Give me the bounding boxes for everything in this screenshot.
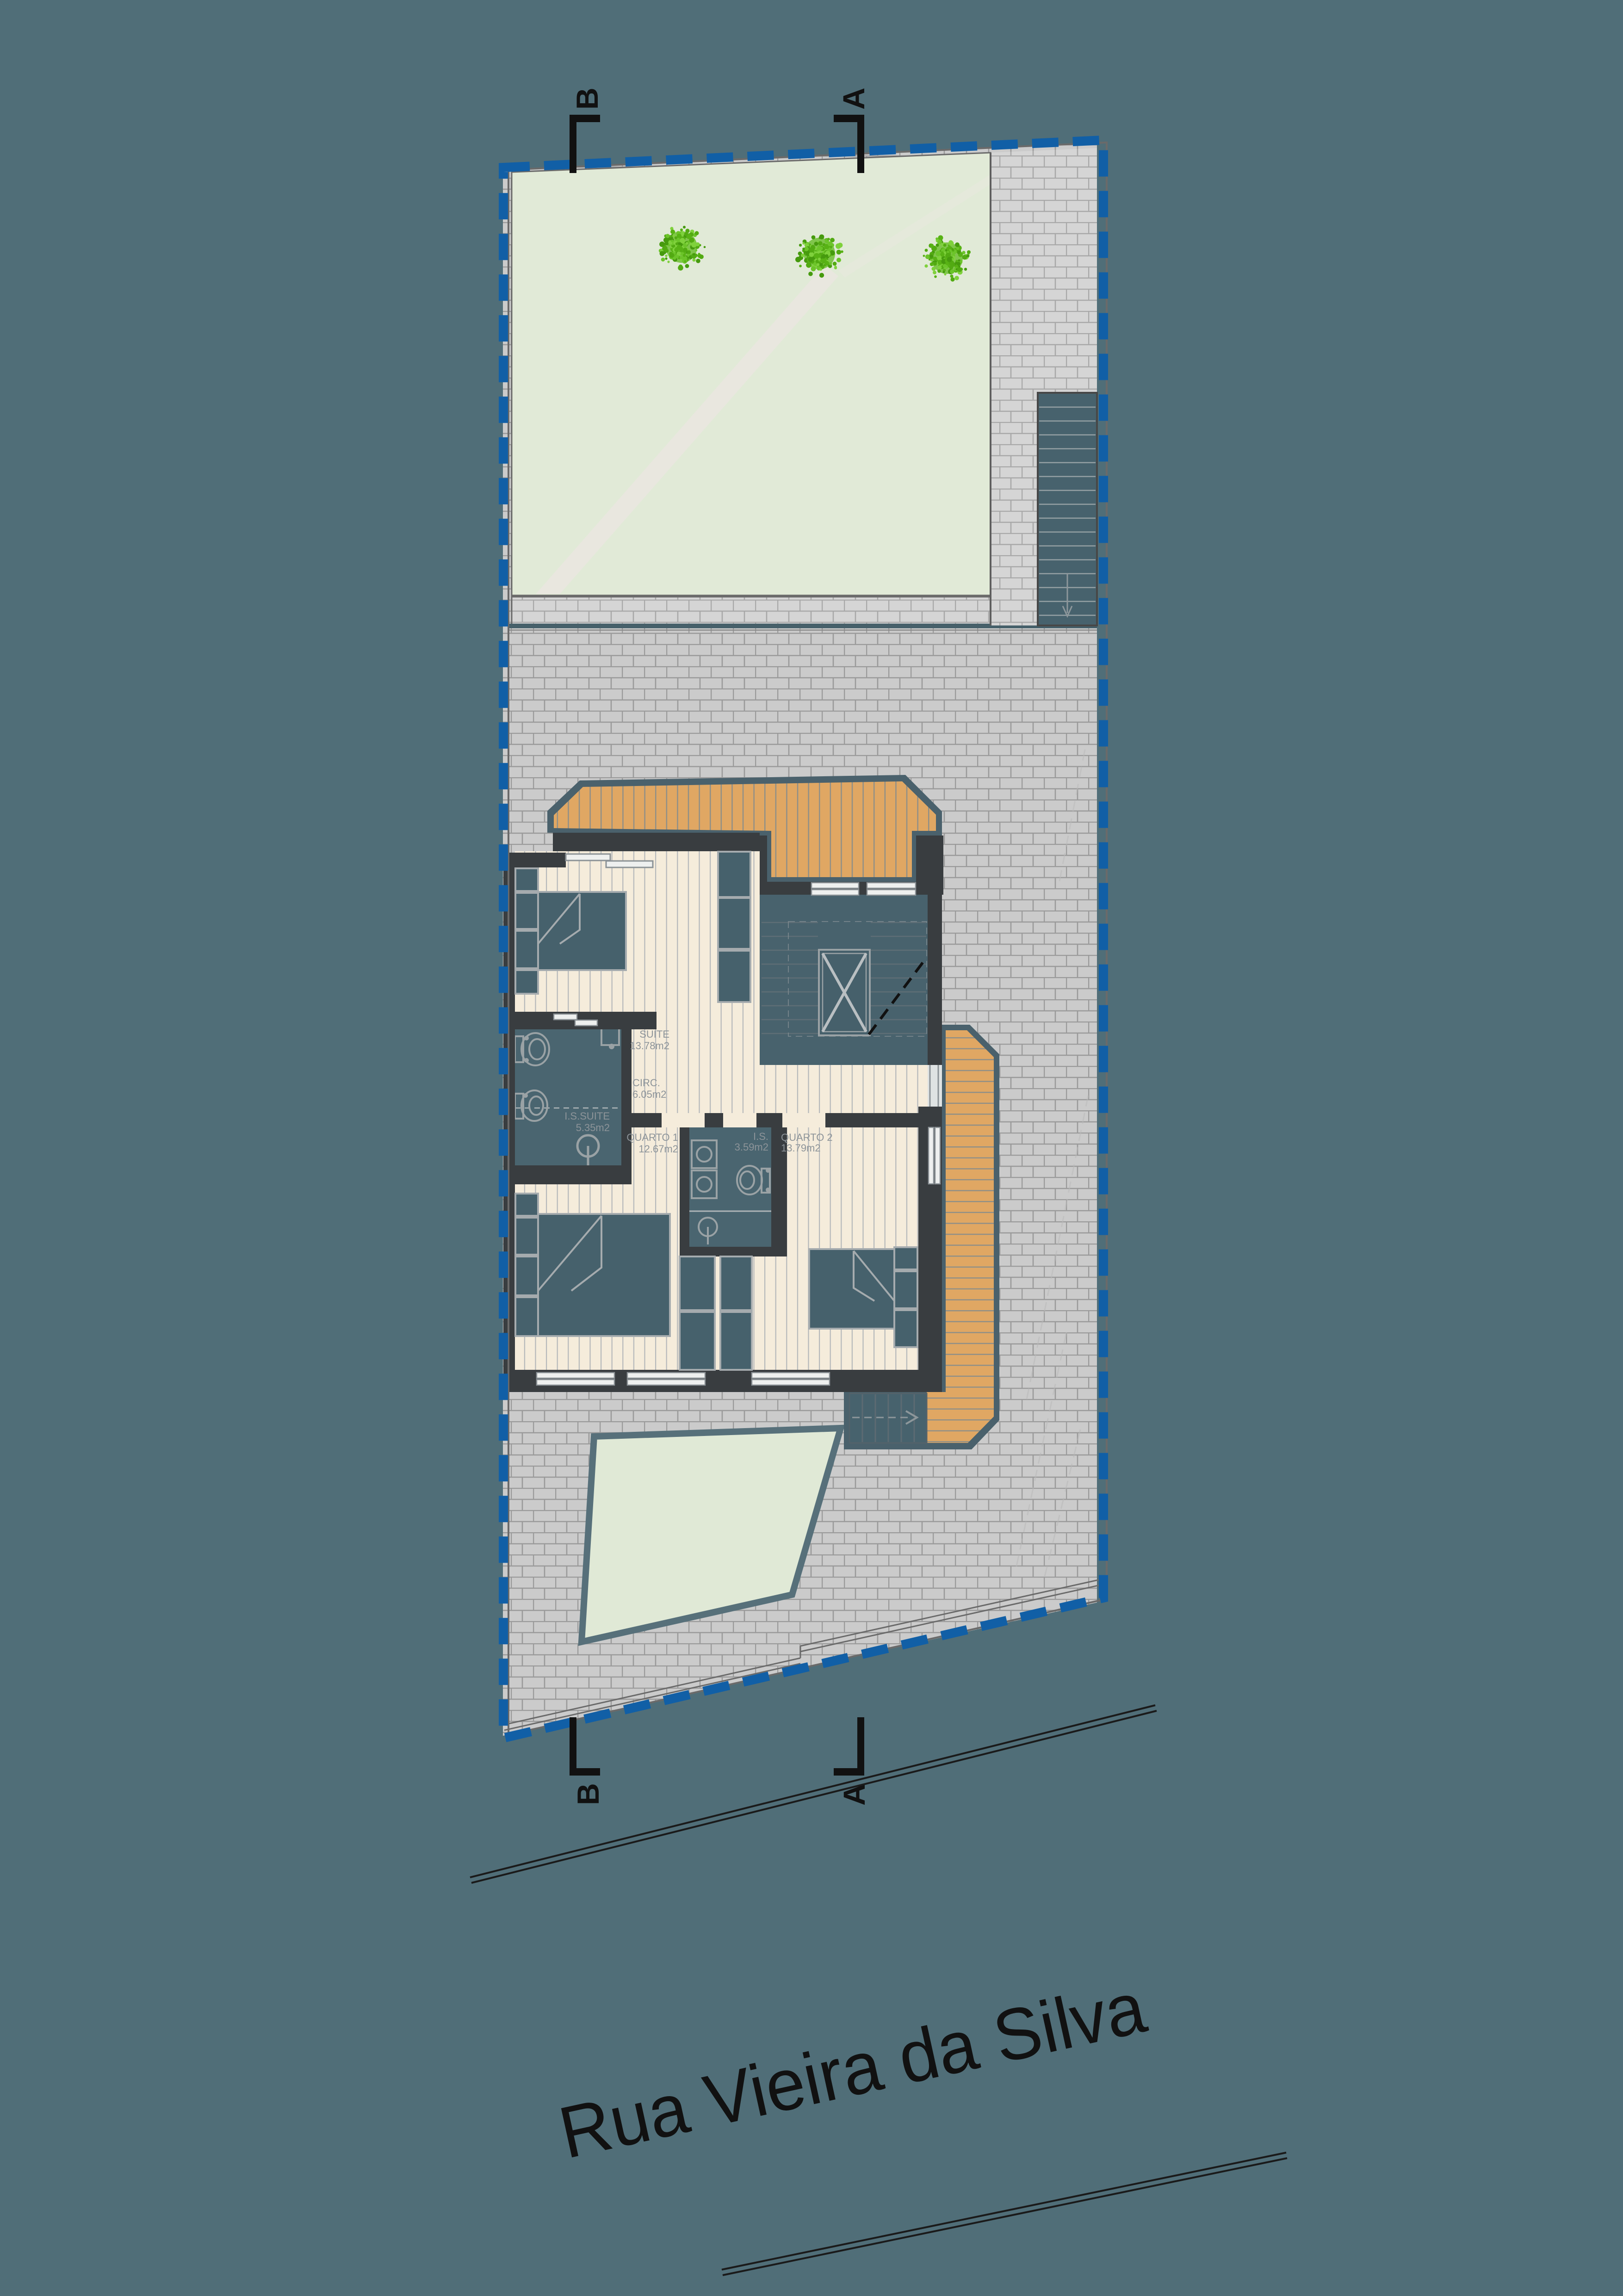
svg-text:13.79m2: 13.79m2 xyxy=(781,1142,821,1154)
svg-text:12.67m2: 12.67m2 xyxy=(638,1143,678,1155)
svg-text:SUITE: SUITE xyxy=(639,1028,669,1040)
svg-text:I.S.: I.S. xyxy=(753,1131,768,1142)
svg-text:CIRC.: CIRC. xyxy=(632,1077,660,1089)
svg-text:QUARTO 2: QUARTO 2 xyxy=(781,1132,833,1143)
svg-text:6.05m2: 6.05m2 xyxy=(632,1089,666,1100)
svg-text:5.35m2: 5.35m2 xyxy=(576,1122,610,1133)
svg-text:13.78m2: 13.78m2 xyxy=(630,1040,669,1052)
svg-text:A: A xyxy=(836,87,871,110)
svg-text:I.S.SUITE: I.S.SUITE xyxy=(564,1110,610,1122)
svg-text:QUARTO 1: QUARTO 1 xyxy=(626,1132,678,1143)
svg-text:3.59m2: 3.59m2 xyxy=(735,1141,768,1153)
svg-text:B: B xyxy=(571,1783,605,1805)
svg-text:B: B xyxy=(570,87,604,110)
